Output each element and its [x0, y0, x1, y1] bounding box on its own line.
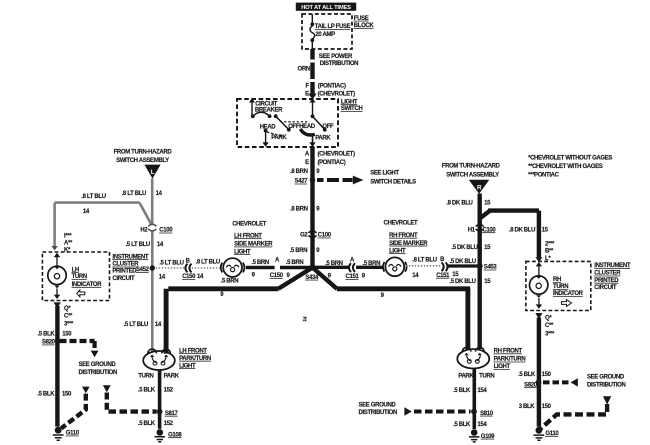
svg-text:LIGHT: LIGHT — [389, 248, 406, 254]
svg-text:E: E — [305, 91, 309, 97]
svg-text:14: 14 — [155, 322, 162, 328]
svg-text:(CHEVROLET): (CHEVROLET) — [318, 152, 356, 158]
svg-text:S820: S820 — [42, 340, 56, 346]
svg-text:SIDE MARKER: SIDE MARKER — [389, 241, 428, 247]
svg-text:SEE GROUND: SEE GROUND — [79, 362, 117, 368]
svg-text:INSTRUMENT: INSTRUMENT — [594, 263, 631, 269]
svg-text:.5 BRN: .5 BRN — [251, 260, 269, 266]
svg-text:15: 15 — [452, 272, 459, 278]
svg-text:INDICATOR: INDICATOR — [553, 291, 584, 297]
svg-text:3***: 3*** — [64, 322, 74, 328]
svg-text:S820: S820 — [524, 382, 538, 388]
svg-text:INSTRUMENT: INSTRUMENT — [112, 254, 149, 260]
svg-text:C100: C100 — [318, 233, 332, 239]
svg-text:3***: 3*** — [545, 332, 555, 338]
svg-text:.5 BLK: .5 BLK — [138, 387, 156, 393]
svg-text:15: 15 — [484, 200, 491, 206]
svg-text:E: E — [305, 160, 309, 166]
svg-text:G110: G110 — [545, 431, 559, 437]
svg-text:HEAD: HEAD — [299, 124, 316, 130]
svg-text:HOT AT ALL TIMES: HOT AT ALL TIMES — [301, 5, 351, 11]
svg-text:.5 BLK: .5 BLK — [518, 372, 536, 378]
svg-text:BLOCK: BLOCK — [354, 23, 375, 29]
svg-text:.5 BLK: .5 BLK — [453, 422, 471, 428]
svg-text:15: 15 — [542, 227, 549, 233]
svg-text:.8 BRN: .8 BRN — [290, 169, 308, 175]
svg-text:SEE POWER: SEE POWER — [319, 54, 353, 60]
svg-text:14: 14 — [197, 274, 204, 280]
svg-text:.5 BRN: .5 BRN — [290, 248, 308, 254]
svg-text:CLUSTER: CLUSTER — [112, 262, 139, 268]
svg-text:.5 DK BLU: .5 DK BLU — [449, 279, 475, 285]
svg-text:.8 LT BLU: .8 LT BLU — [122, 191, 146, 197]
svg-text:(PONTIAC): (PONTIAC) — [318, 83, 346, 89]
svg-text:SEE GROUND: SEE GROUND — [587, 374, 625, 380]
svg-text:C151: C151 — [436, 273, 450, 279]
svg-text:20 AMP: 20 AMP — [315, 32, 335, 38]
svg-text:(PONTIAC): (PONTIAC) — [318, 160, 346, 166]
svg-text:LIGHT: LIGHT — [494, 364, 511, 370]
svg-text:CLUSTER: CLUSTER — [594, 271, 621, 277]
svg-text:.8 DK BLU: .8 DK BLU — [509, 227, 535, 233]
svg-text:.5 DK BLU: .5 DK BLU — [451, 245, 477, 251]
svg-text:PARK: PARK — [271, 135, 287, 141]
svg-text:154: 154 — [477, 388, 487, 394]
svg-text:LIGHT: LIGHT — [234, 249, 251, 255]
svg-text:PARK: PARK — [458, 374, 474, 380]
svg-text:LIGHT: LIGHT — [341, 99, 358, 105]
svg-text:3 BLK: 3 BLK — [519, 404, 536, 410]
svg-text:B**: B** — [545, 249, 554, 255]
svg-text:S817: S817 — [165, 411, 179, 417]
svg-text:G109: G109 — [481, 434, 495, 440]
svg-text:SWITCH ASSEMBLY: SWITCH ASSEMBLY — [446, 172, 499, 178]
svg-text:14: 14 — [159, 274, 166, 280]
svg-text:CIRCUIT: CIRCUIT — [112, 276, 135, 282]
svg-text:DISTRIBUTION: DISTRIBUTION — [359, 410, 397, 416]
svg-text:S434: S434 — [305, 275, 319, 281]
svg-text:14: 14 — [412, 273, 419, 279]
svg-text:G2: G2 — [300, 233, 308, 239]
svg-text:OFF: OFF — [322, 124, 334, 130]
svg-text:G110: G110 — [66, 431, 80, 437]
svg-text:152: 152 — [164, 421, 174, 427]
svg-text:SWITCH ASSEMBLY: SWITCH ASSEMBLY — [116, 158, 169, 164]
svg-text:TURN: TURN — [72, 274, 87, 280]
svg-text:C100: C100 — [159, 228, 173, 234]
svg-text:15: 15 — [484, 279, 491, 285]
svg-text:.5 BLK: .5 BLK — [37, 391, 55, 397]
svg-text:150: 150 — [62, 391, 72, 397]
svg-text:K*: K* — [64, 247, 71, 253]
svg-text:14: 14 — [156, 191, 163, 197]
svg-text:DISTRIBUTION: DISTRIBUTION — [587, 382, 625, 388]
svg-text:PARK/TURN: PARK/TURN — [494, 357, 526, 363]
svg-text:.5 BRN: .5 BRN — [325, 261, 343, 267]
svg-text:DISTRIBUTION: DISTRIBUTION — [79, 370, 117, 376]
svg-text:150: 150 — [62, 331, 72, 337]
svg-text:.8 BRN: .8 BRN — [290, 206, 308, 212]
svg-text:.8 LT BLU: .8 LT BLU — [412, 257, 436, 263]
svg-text:.5 LT BLU: .5 LT BLU — [125, 242, 149, 248]
svg-text:S452: S452 — [136, 267, 150, 273]
svg-text:C150: C150 — [182, 274, 196, 280]
svg-text:TAIL LP FUSE: TAIL LP FUSE — [315, 24, 351, 30]
svg-text:.5 BLK: .5 BLK — [138, 421, 156, 427]
svg-text:Q*: Q* — [64, 306, 71, 312]
svg-text:R: R — [477, 184, 482, 191]
svg-text:15: 15 — [484, 245, 491, 251]
svg-text:**CHEVROLET WITH GAGES: **CHEVROLET WITH GAGES — [528, 164, 603, 170]
svg-text:FUSE: FUSE — [354, 16, 369, 22]
svg-text:A**: A** — [64, 241, 73, 247]
svg-text:LH: LH — [72, 267, 79, 273]
svg-text:.8 LT BLU: .8 LT BLU — [81, 194, 105, 200]
svg-text:DISTRIBUTION: DISTRIBUTION — [320, 61, 358, 67]
svg-text:SEE LIGHT: SEE LIGHT — [370, 171, 399, 177]
svg-text:ORN: ORN — [298, 66, 310, 72]
svg-text:CIRCUIT: CIRCUIT — [594, 285, 617, 291]
svg-text:FROM TURN-HAZARD: FROM TURN-HAZARD — [442, 164, 501, 170]
svg-text:G108: G108 — [168, 432, 182, 438]
svg-text:SIDE MARKER: SIDE MARKER — [234, 242, 273, 248]
svg-text:PRINTED: PRINTED — [594, 278, 619, 284]
svg-text:I***: I*** — [64, 233, 72, 239]
svg-text:14: 14 — [157, 242, 164, 248]
svg-text:*CHEVROLET WITHOUT GAGES: *CHEVROLET WITHOUT GAGES — [528, 156, 612, 162]
svg-text:RH FRONT: RH FRONT — [389, 233, 418, 239]
svg-text:RH FRONT: RH FRONT — [494, 349, 523, 355]
svg-text:.5 BLK: .5 BLK — [37, 331, 55, 337]
svg-text:.8 DK BLU: .8 DK BLU — [446, 200, 472, 206]
svg-text:150: 150 — [542, 404, 552, 410]
svg-text:C100: C100 — [482, 227, 496, 233]
svg-text:BREAKER: BREAKER — [255, 107, 283, 113]
svg-text:CHEVROLET: CHEVROLET — [384, 221, 419, 227]
svg-text:PRINTED: PRINTED — [112, 269, 137, 275]
svg-text:2***: 2*** — [545, 242, 555, 248]
svg-text:(CHEVROLET): (CHEVROLET) — [318, 91, 356, 97]
svg-text:L: L — [151, 169, 155, 176]
svg-text:OFF: OFF — [288, 124, 300, 130]
svg-text:SWITCH: SWITCH — [341, 106, 363, 112]
svg-text:.8 LT BLU: .8 LT BLU — [196, 259, 220, 265]
svg-text:152: 152 — [164, 387, 174, 393]
svg-text:.5 DK BLU: .5 DK BLU — [450, 259, 476, 265]
svg-text:.5 BLK: .5 BLK — [453, 388, 471, 394]
svg-text:SEE GROUND: SEE GROUND — [359, 403, 397, 409]
svg-text:HEAD: HEAD — [260, 124, 277, 130]
svg-text:.5 LT BLU: .5 LT BLU — [124, 322, 148, 328]
svg-text:TURN: TURN — [479, 374, 494, 380]
svg-text:S453: S453 — [484, 265, 498, 271]
svg-text:PARK/TURN: PARK/TURN — [179, 356, 211, 362]
svg-text:PARK: PARK — [164, 374, 180, 380]
svg-text:.5 LT BLU: .5 LT BLU — [159, 261, 183, 267]
svg-text:LH FRONT: LH FRONT — [234, 233, 262, 239]
svg-text:***PONTIAC: ***PONTIAC — [528, 173, 560, 179]
svg-text:RH: RH — [553, 277, 561, 283]
svg-text:H2: H2 — [140, 228, 148, 234]
svg-text:LIGHT: LIGHT — [179, 363, 196, 369]
svg-text:SWITCH DETAILS: SWITCH DETAILS — [370, 179, 416, 185]
svg-text:TURN: TURN — [138, 374, 153, 380]
svg-text:CHEVROLET: CHEVROLET — [232, 221, 267, 227]
svg-text:FROM TURN-HAZARD: FROM TURN-HAZARD — [114, 150, 173, 156]
svg-text:14: 14 — [83, 209, 90, 215]
svg-text:S810: S810 — [480, 411, 494, 417]
svg-text:S427: S427 — [295, 179, 309, 185]
svg-text:Q*: Q* — [545, 316, 552, 322]
svg-text:TURN: TURN — [553, 284, 568, 290]
svg-text:PARK: PARK — [315, 135, 331, 141]
svg-text:C**: C** — [64, 314, 73, 320]
svg-text:LH FRONT: LH FRONT — [179, 348, 207, 354]
svg-text:INDICATOR: INDICATOR — [72, 282, 103, 288]
svg-text:C150: C150 — [270, 273, 284, 279]
svg-text:.5 BRN: .5 BRN — [363, 261, 381, 267]
svg-text:.5 BRN: .5 BRN — [286, 260, 304, 266]
svg-text:H1: H1 — [468, 227, 476, 233]
svg-text:.5 BRN: .5 BRN — [221, 279, 239, 285]
svg-text:C151: C151 — [346, 274, 360, 280]
svg-text:154: 154 — [477, 422, 487, 428]
svg-text:150: 150 — [542, 372, 552, 378]
svg-text:C**: C** — [545, 323, 554, 329]
